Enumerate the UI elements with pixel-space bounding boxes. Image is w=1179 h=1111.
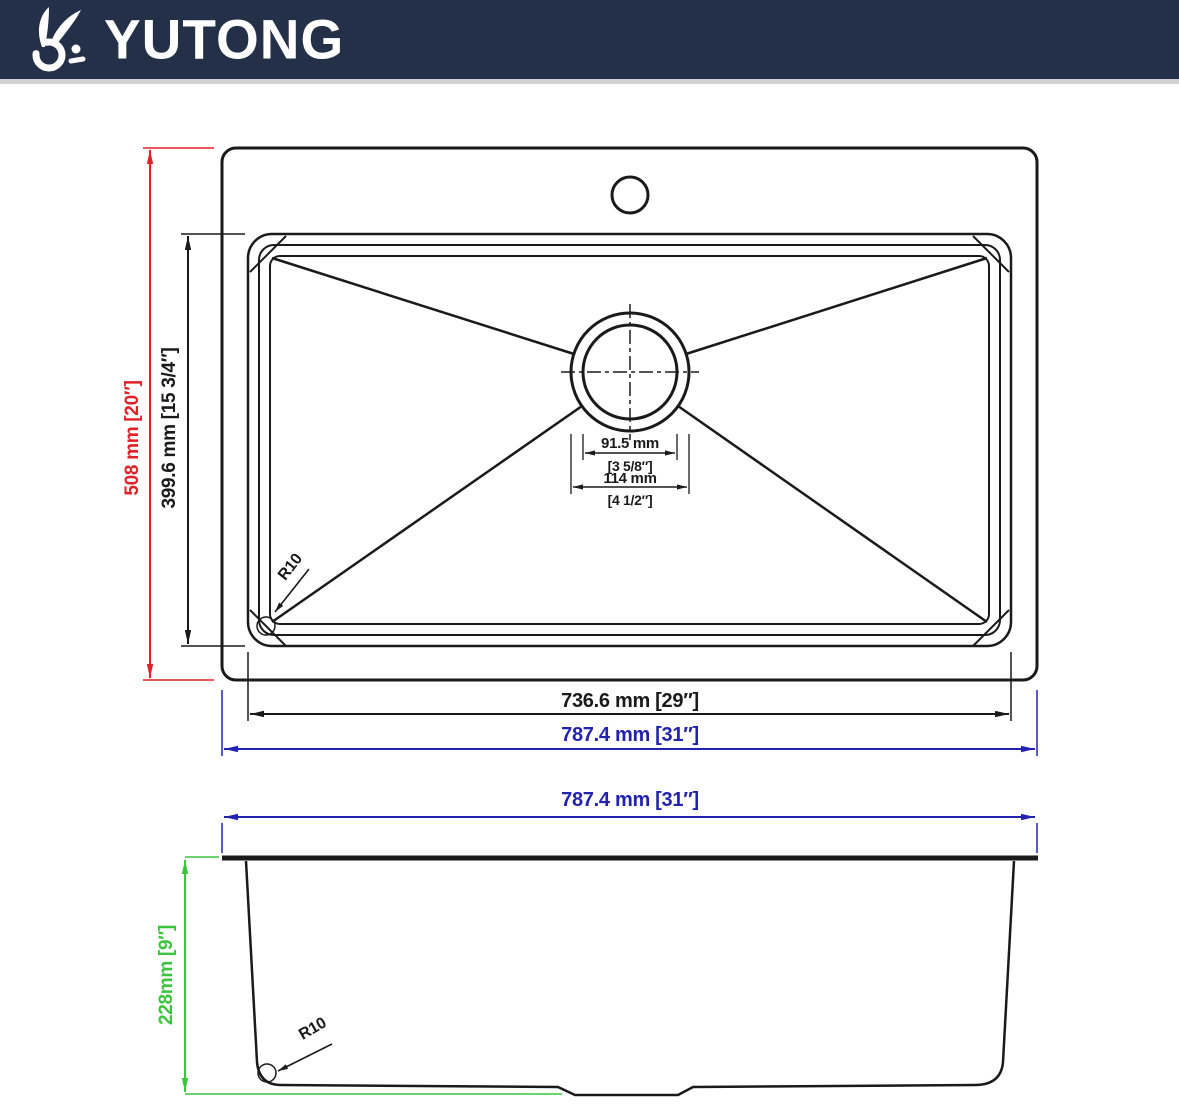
bowl-height-label: 399.6 mm [15 3/4″] bbox=[159, 347, 180, 508]
brand-title: YUTONG bbox=[104, 0, 344, 80]
overall-width-dimension-side: 787.4 mm [31″] bbox=[222, 789, 1037, 853]
brand-header: YUTONG bbox=[0, 0, 1179, 84]
bowl-width-dimension: 736.6 mm [29″] bbox=[248, 652, 1011, 721]
depth-dimension: 228mm [9″] bbox=[156, 857, 562, 1094]
overall-height-label: 508 mm [20″] bbox=[122, 380, 143, 495]
drain-inner-dim-label: 91.5 mm bbox=[601, 435, 659, 452]
drain-centerlines bbox=[561, 304, 699, 440]
side-view-bowl-profile bbox=[246, 861, 1014, 1095]
sink-spec-sheet: 91.5 mm [3 5/8″] 114 mm [4 1/2″] R10 508… bbox=[0, 0, 1179, 1111]
bowl-height-dimension: 399.6 mm [15 3/4″] bbox=[159, 234, 245, 646]
depth-label: 228mm [9″] bbox=[156, 925, 177, 1025]
overall-width-label-side: 787.4 mm [31″] bbox=[561, 789, 699, 811]
overall-width-label-top: 787.4 mm [31″] bbox=[561, 724, 699, 746]
side-view: 787.4 mm [31″] 228mm [9″] R10 bbox=[156, 789, 1038, 1095]
top-view: 91.5 mm [3 5/8″] 114 mm [4 1/2″] R10 508… bbox=[122, 148, 1037, 756]
faucet-hole bbox=[612, 177, 648, 213]
rabbit-logo-icon bbox=[14, 7, 98, 73]
drain-dimensions: 91.5 mm [3 5/8″] 114 mm [4 1/2″] bbox=[571, 434, 689, 508]
drain-outer-dim-label: 114 mm bbox=[603, 470, 656, 487]
bowl-width-label: 736.6 mm [29″] bbox=[561, 690, 699, 712]
side-view-corner-radius-label: R10 bbox=[296, 1014, 329, 1043]
top-view-corner-radius-callout: R10 bbox=[257, 550, 309, 635]
technical-drawing: 91.5 mm [3 5/8″] 114 mm [4 1/2″] R10 508… bbox=[0, 0, 1179, 1111]
drain-outer-dim-inches-label: [4 1/2″] bbox=[608, 492, 653, 508]
side-view-corner-radius-callout: R10 bbox=[258, 1014, 332, 1082]
